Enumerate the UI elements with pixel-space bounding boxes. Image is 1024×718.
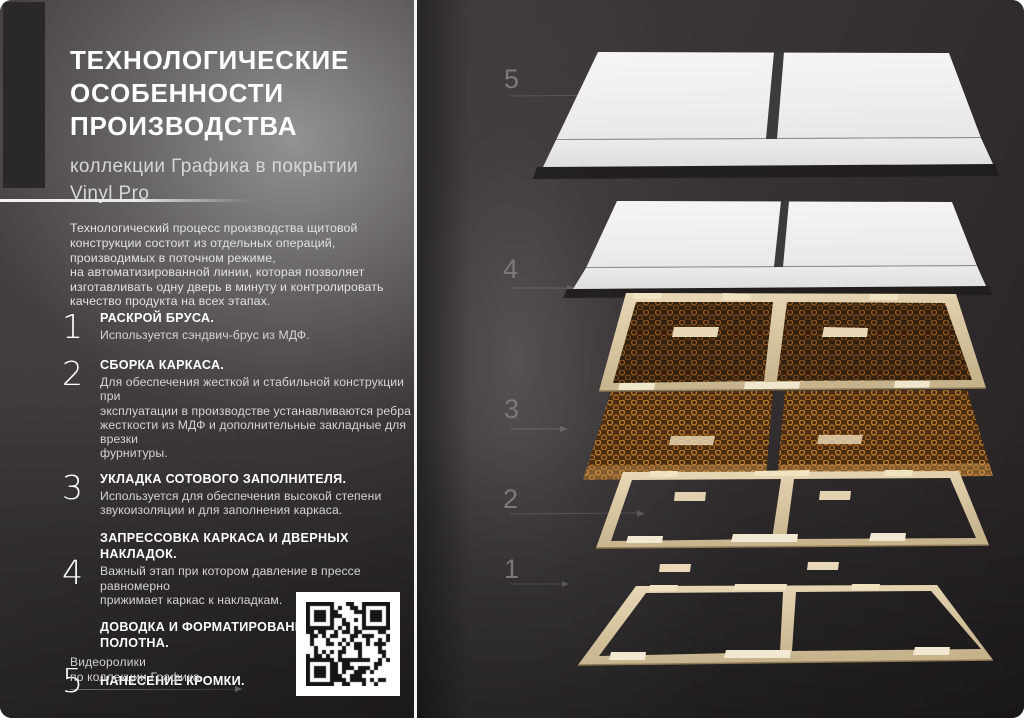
step-number: 4: [62, 556, 100, 590]
step-item-3: 3 УКЛАДКА СОТОВОГО ЗАПОЛНИТЕЛЯ. Использу…: [62, 471, 417, 518]
step-title: УКЛАДКА СОТОВОГО ЗАПОЛНИТЕЛЯ.: [100, 471, 417, 487]
step-body: Используется для обеспечения высокой сте…: [100, 489, 417, 518]
layer-2-frame: [596, 470, 989, 548]
accent-bar: [3, 2, 45, 188]
step-number: 3: [62, 471, 100, 505]
step-number: 1: [62, 310, 100, 344]
layer-label-2: 2: [503, 484, 518, 514]
layer-3-framed-honeycomb: [599, 293, 986, 391]
title-block: ТЕХНОЛОГИЧЕСКИЕ ОСОБЕННОСТИ ПРОИЗВОДСТВА…: [70, 44, 410, 207]
step-item-2: 2 СБОРКА КАРКАСА. Для обеспечения жестко…: [62, 357, 417, 461]
step-number: 2: [62, 357, 100, 391]
video-pointer-line: [70, 689, 235, 690]
exploded-door-diagram: 5 4 3 2 1: [415, 0, 1024, 718]
layer-label-3: 3: [504, 394, 519, 424]
floating-blocks: [659, 562, 839, 572]
layer-label-5: 5: [504, 64, 519, 94]
qr-canvas: [306, 602, 390, 686]
video-label: Видеоролики по коллекции Графика: [70, 655, 290, 684]
page-title: ТЕХНОЛОГИЧЕСКИЕ ОСОБЕННОСТИ ПРОИЗВОДСТВА: [70, 44, 410, 143]
horizontal-divider: [0, 199, 250, 202]
step-title: СБОРКА КАРКАСА.: [100, 357, 417, 373]
step-body: Для обеспечения жесткой и стабильной кон…: [100, 375, 417, 461]
qr-code: [296, 592, 400, 696]
video-note: Видеоролики по коллекции Графика: [70, 655, 290, 684]
step-body: Используется сэндвич-брус из МДФ.: [100, 328, 417, 342]
door-construction-diagram-panel: 5 4 3 2 1: [415, 0, 1024, 718]
left-panel: ТЕХНОЛОГИЧЕСКИЕ ОСОБЕННОСТИ ПРОИЗВОДСТВА…: [0, 0, 415, 718]
layer-labels: 5 4 3 2 1: [503, 64, 519, 584]
layer-label-1: 1: [504, 554, 519, 584]
arrow-right-icon: [235, 686, 242, 692]
step-item-1: 1 РАСКРОЙ БРУСА. Используется сэндвич-бр…: [62, 310, 417, 344]
intro-paragraph: Технологический процесс производства щит…: [70, 221, 420, 309]
step-title: РАСКРОЙ БРУСА.: [100, 310, 417, 326]
layer-4-door-skin: [563, 201, 992, 298]
step-title: ЗАПРЕССОВКА КАРКАСА И ДВЕРНЫХ НАКЛАДОК.: [100, 530, 417, 562]
vertical-divider: [414, 0, 417, 718]
layer-1-frame: [578, 584, 993, 665]
slide: ТЕХНОЛОГИЧЕСКИЕ ОСОБЕННОСТИ ПРОИЗВОДСТВА…: [0, 0, 1024, 718]
layer-5-door-skin: [533, 52, 999, 179]
layer-3-honeycomb-filler: [583, 390, 993, 480]
layer-label-4: 4: [503, 254, 518, 284]
